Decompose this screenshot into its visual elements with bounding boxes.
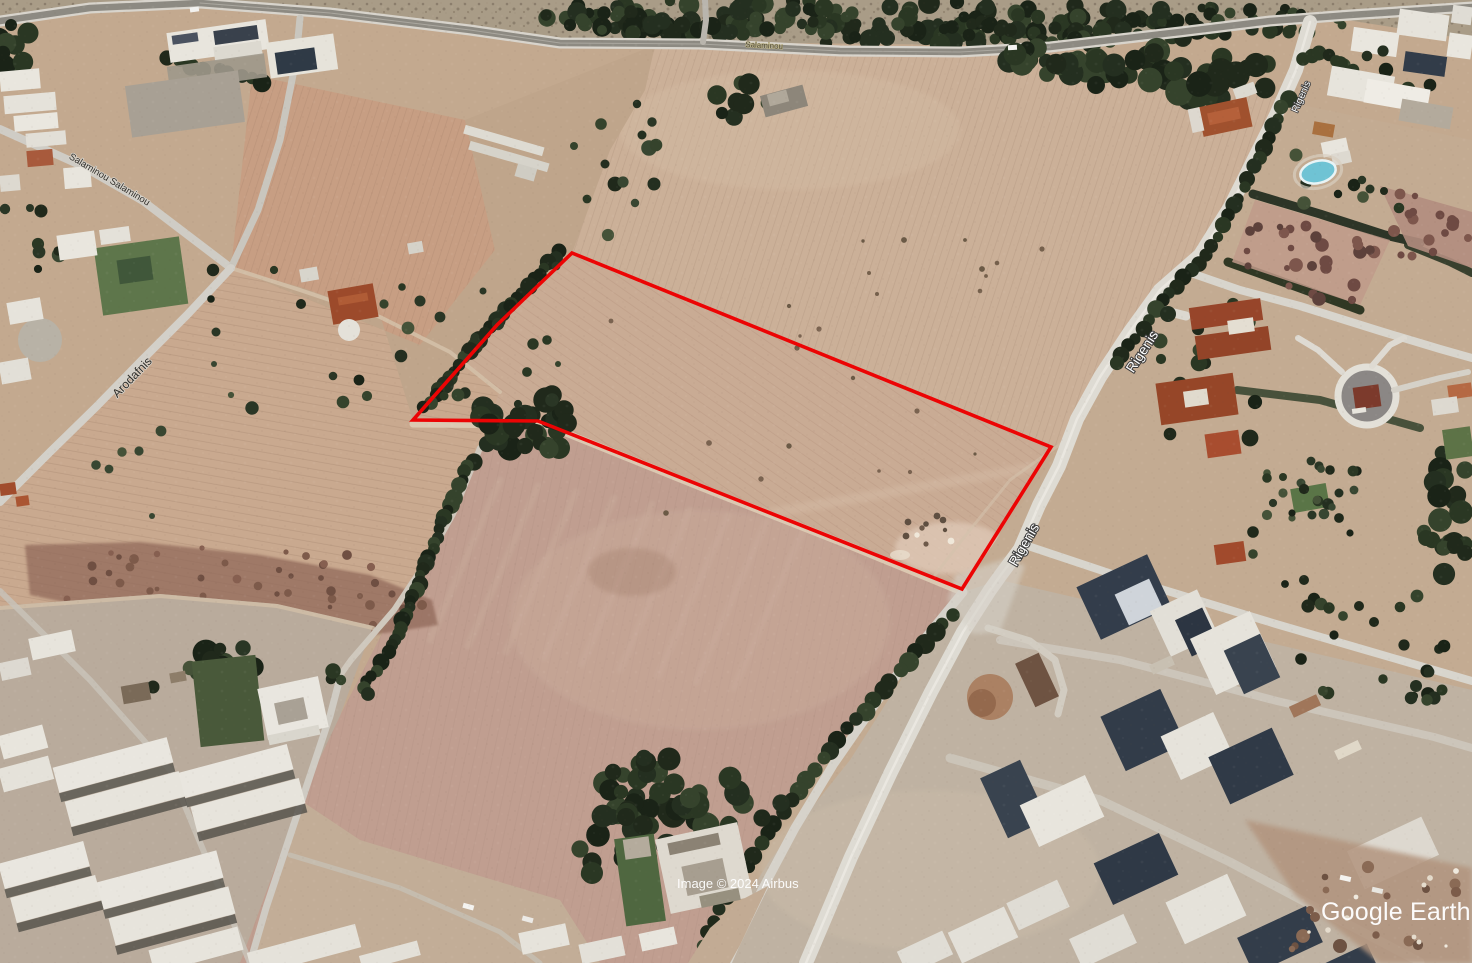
svg-text:Google Earth: Google Earth bbox=[1321, 898, 1471, 926]
svg-text:Image © 2024 Airbus: Image © 2024 Airbus bbox=[677, 876, 799, 891]
